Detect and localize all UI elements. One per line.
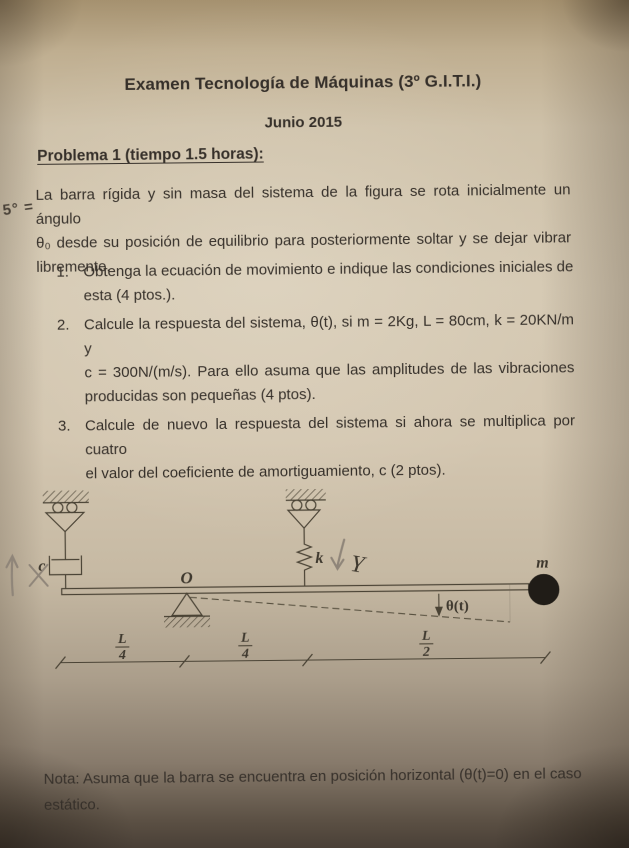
item-number: 3. bbox=[58, 414, 86, 486]
text-line: Calcule de nuevo la respuesta del sistem… bbox=[85, 409, 575, 462]
theta-label: θ(t) bbox=[446, 598, 469, 614]
mechanism-diagram: c O k bbox=[1, 475, 629, 696]
dimension-label-3: L 2 bbox=[419, 629, 433, 660]
spring-support bbox=[286, 489, 327, 540]
text-line: La barra rígida y sin masa del sistema d… bbox=[35, 178, 570, 232]
exam-paper-photo: Examen Tecnología de Máquinas (3º G.I.T.… bbox=[0, 0, 629, 848]
svg-text:L: L bbox=[421, 629, 431, 644]
item-number: 1. bbox=[56, 260, 84, 308]
pencil-up-arrow-icon bbox=[6, 556, 17, 595]
rigid-bar bbox=[62, 584, 529, 595]
theta-arrow bbox=[435, 594, 443, 617]
dimension-label-2: L 4 bbox=[238, 631, 252, 662]
dimension-line bbox=[55, 652, 550, 669]
svg-text:2: 2 bbox=[422, 645, 430, 660]
text-line: c = 300N/(m/s). Para ello asuma que las … bbox=[84, 356, 574, 385]
pencil-y-letter: Y bbox=[349, 551, 369, 579]
list-item-1: 1. Obtenga la ecuación de movimiento e i… bbox=[56, 255, 573, 308]
roller-icon bbox=[306, 500, 316, 510]
text-line: Obtenga la ecuación de movimiento e indi… bbox=[83, 255, 573, 284]
text-line: esta (4 ptos.). bbox=[84, 279, 574, 308]
exam-date: Junio 2015 bbox=[35, 111, 572, 134]
text-line: Calcule la respuesta del sistema, θ(t), … bbox=[84, 308, 574, 361]
problem-list: 1. Obtenga la ecuación de movimiento e i… bbox=[56, 255, 575, 491]
note-paragraph: Nota: Asuma que la barra se encuentra en… bbox=[44, 761, 583, 819]
svg-text:4: 4 bbox=[118, 648, 126, 663]
pencil-down-arrow-icon bbox=[331, 540, 344, 569]
spring-icon bbox=[297, 540, 311, 586]
pivot-label: O bbox=[180, 568, 192, 587]
roller-icon bbox=[67, 502, 77, 512]
problem-heading: Problema 1 (tiempo 1.5 horas): bbox=[37, 146, 264, 166]
list-item-3: 3. Calcule de nuevo la respuesta del sis… bbox=[58, 409, 576, 486]
dimension-label-1: L 4 bbox=[115, 632, 129, 663]
mass-label: m bbox=[536, 555, 549, 572]
exam-title: Examen Tecnología de Máquinas (3º G.I.T.… bbox=[34, 70, 571, 96]
item-number: 2. bbox=[57, 313, 85, 409]
spring-label: k bbox=[315, 550, 323, 567]
svg-text:L: L bbox=[240, 631, 250, 646]
svg-text:L: L bbox=[117, 632, 127, 647]
roller-icon bbox=[53, 503, 63, 513]
mass-icon bbox=[529, 574, 559, 604]
damper-icon bbox=[49, 555, 81, 588]
roller-icon bbox=[292, 500, 302, 510]
damper-support bbox=[43, 490, 90, 559]
handwritten-angle-note: 5° = bbox=[2, 198, 35, 219]
paper-content: Examen Tecnología de Máquinas (3º G.I.T.… bbox=[0, 0, 629, 848]
svg-text:4: 4 bbox=[241, 647, 249, 662]
text-line: producidas son pequeñas (4 ptos). bbox=[85, 380, 575, 409]
list-item-2: 2. Calcule la respuesta del sistema, θ(t… bbox=[57, 308, 575, 409]
